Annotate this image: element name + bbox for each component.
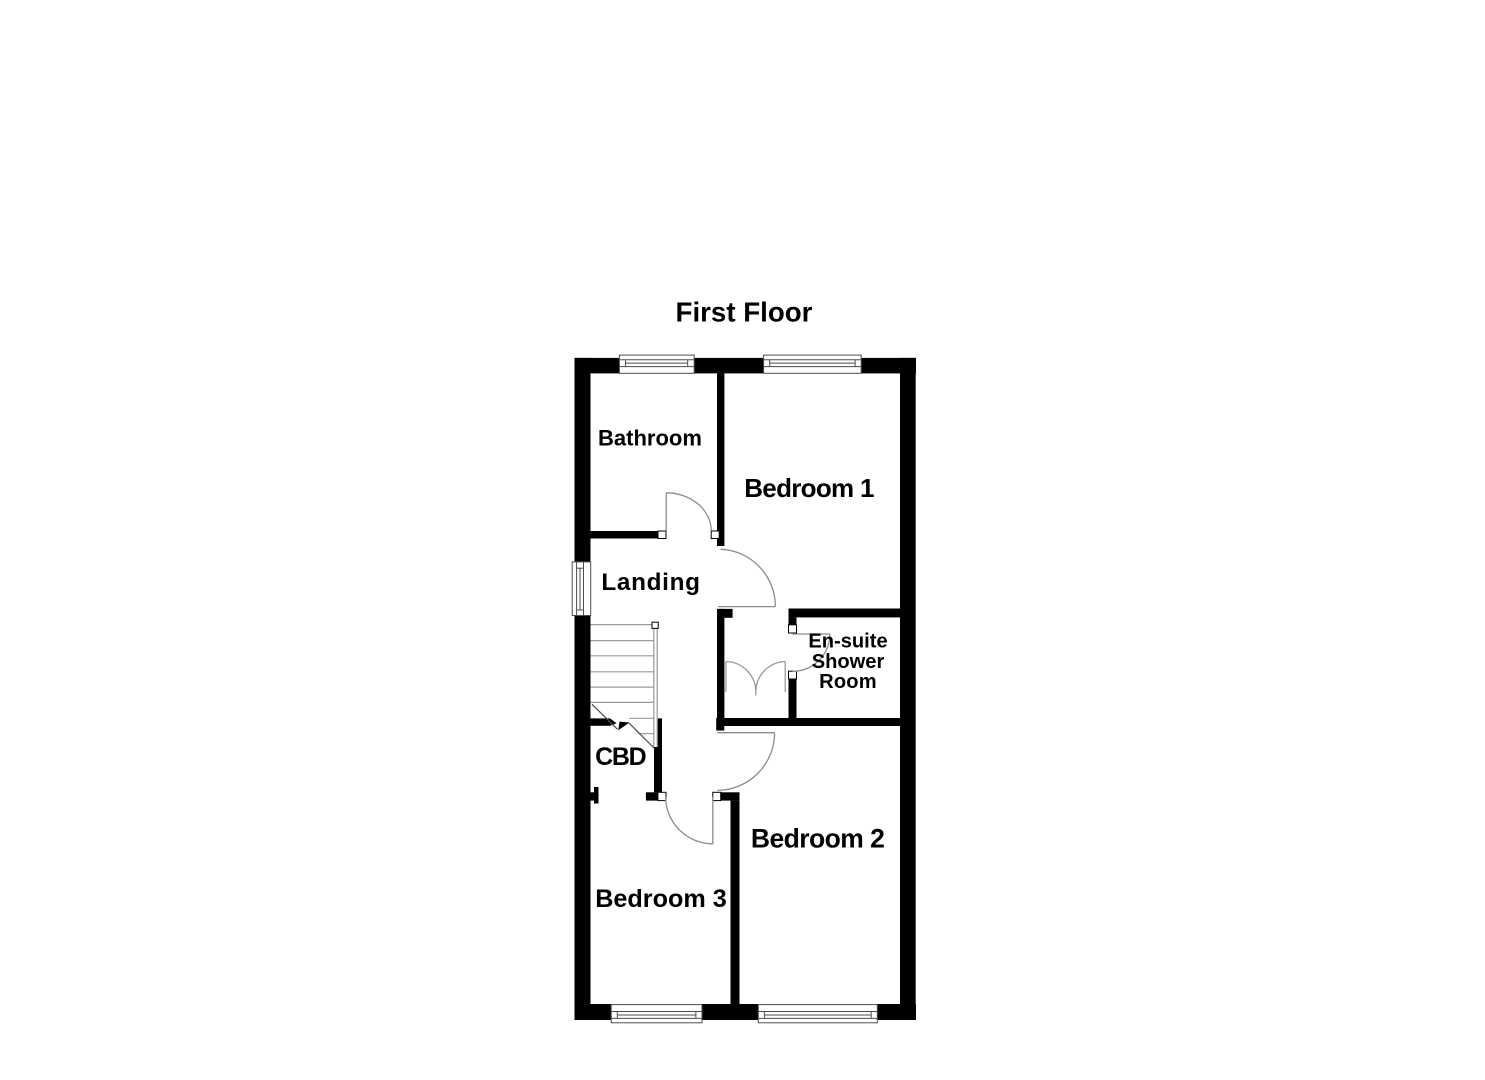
svg-text:Shower: Shower [812, 651, 885, 673]
svg-text:Bedroom 2: Bedroom 2 [751, 823, 884, 853]
svg-text:Bathroom: Bathroom [598, 426, 702, 451]
svg-text:En-suite: En-suite [808, 630, 887, 652]
svg-text:CBD: CBD [595, 743, 646, 771]
svg-text:Bedroom 3: Bedroom 3 [595, 885, 727, 913]
svg-text:Bedroom 1: Bedroom 1 [744, 473, 874, 503]
svg-text:First Floor: First Floor [676, 297, 813, 328]
svg-text:Room: Room [819, 671, 877, 693]
svg-text:Landing: Landing [601, 569, 700, 596]
